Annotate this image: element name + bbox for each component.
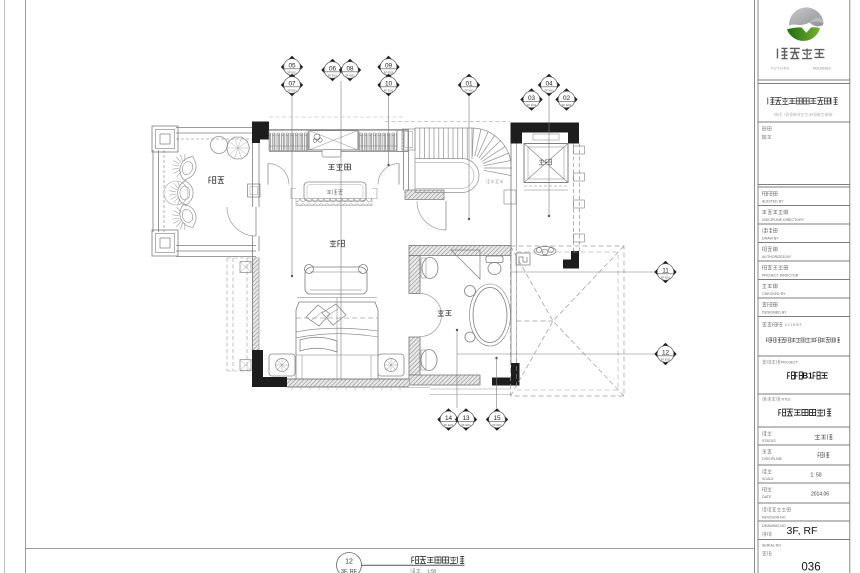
svg-text:PROJECT DIRECTOR: PROJECT DIRECTOR	[762, 274, 799, 278]
svg-text:CHECKED BY: CHECKED BY	[762, 292, 786, 296]
svg-text:02: 02	[563, 95, 571, 102]
svg-text:08: 08	[346, 66, 354, 73]
svg-text:13: 13	[462, 415, 470, 422]
svg-text:F U T U R E: F U T U R E	[771, 67, 790, 71]
svg-text:3F, RF: 3F, RF	[341, 569, 358, 573]
svg-text:AUTHORIZED BY: AUTHORIZED BY	[762, 255, 792, 259]
svg-text:DESIGNED BY: DESIGNED BY	[762, 311, 787, 315]
svg-text:1:50: 1:50	[427, 569, 437, 573]
svg-text:3F E01: 3F E01	[461, 423, 471, 427]
svg-text:REVISION NO: REVISION NO	[762, 516, 786, 520]
svg-text:12: 12	[345, 559, 353, 566]
svg-text:3F E01: 3F E01	[464, 88, 474, 92]
svg-text:3F E01: 3F E01	[527, 103, 537, 107]
svg-text:3F E01: 3F E01	[562, 103, 572, 107]
svg-text:STATUS: STATUS	[762, 439, 776, 443]
svg-text:DRAW BY: DRAW BY	[762, 237, 779, 241]
svg-text:12: 12	[662, 350, 670, 357]
svg-text:3F E01: 3F E01	[661, 357, 671, 361]
svg-text:05: 05	[288, 63, 296, 70]
svg-text:DISCIPLINE DIRECTORY: DISCIPLINE DIRECTORY	[762, 218, 805, 222]
svg-text:3F E01: 3F E01	[444, 423, 454, 427]
svg-text:DATE: DATE	[762, 495, 772, 499]
svg-text:1: 50: 1: 50	[810, 473, 821, 479]
svg-text:3F E01: 3F E01	[384, 70, 394, 74]
svg-text:3F E01: 3F E01	[328, 73, 338, 77]
svg-text:3F E01: 3F E01	[661, 275, 671, 279]
svg-text:09: 09	[385, 63, 393, 70]
svg-text:14: 14	[445, 415, 453, 422]
svg-text:DISCIPLINE: DISCIPLINE	[762, 457, 783, 461]
svg-text:HOLDINGS: HOLDINGS	[813, 67, 831, 71]
svg-text:DRAWING NO: DRAWING NO	[762, 524, 786, 528]
svg-text:TITLE: TITLE	[781, 398, 791, 402]
svg-text:3F E01: 3F E01	[287, 70, 297, 74]
svg-text:3F E01: 3F E01	[492, 423, 502, 427]
svg-text:C L I E N T: C L I E N T	[785, 323, 802, 327]
svg-text:03: 03	[528, 95, 536, 102]
svg-text:PROJECT: PROJECT	[781, 361, 799, 365]
svg-text:07: 07	[288, 81, 296, 88]
svg-text:3F E01: 3F E01	[345, 73, 355, 77]
svg-text:06: 06	[329, 66, 337, 73]
svg-text:3F E01: 3F E01	[544, 88, 554, 92]
svg-text:3F, RF: 3F, RF	[787, 525, 818, 537]
svg-text:SERIAL NO: SERIAL NO	[762, 544, 781, 548]
svg-text:3F E01: 3F E01	[384, 88, 394, 92]
svg-text:15: 15	[493, 415, 501, 422]
svg-text:11: 11	[662, 268, 669, 275]
svg-text:01: 01	[465, 81, 473, 88]
svg-text:AUDITED BY: AUDITED BY	[762, 200, 784, 204]
svg-text:B1: B1	[802, 372, 813, 381]
svg-text:3F E01: 3F E01	[287, 88, 297, 92]
svg-text:10: 10	[385, 81, 393, 88]
svg-text:SCALE: SCALE	[762, 477, 774, 481]
svg-text:04: 04	[545, 81, 553, 88]
svg-text:036: 036	[801, 562, 820, 573]
svg-text:2014.06: 2014.06	[811, 492, 829, 498]
